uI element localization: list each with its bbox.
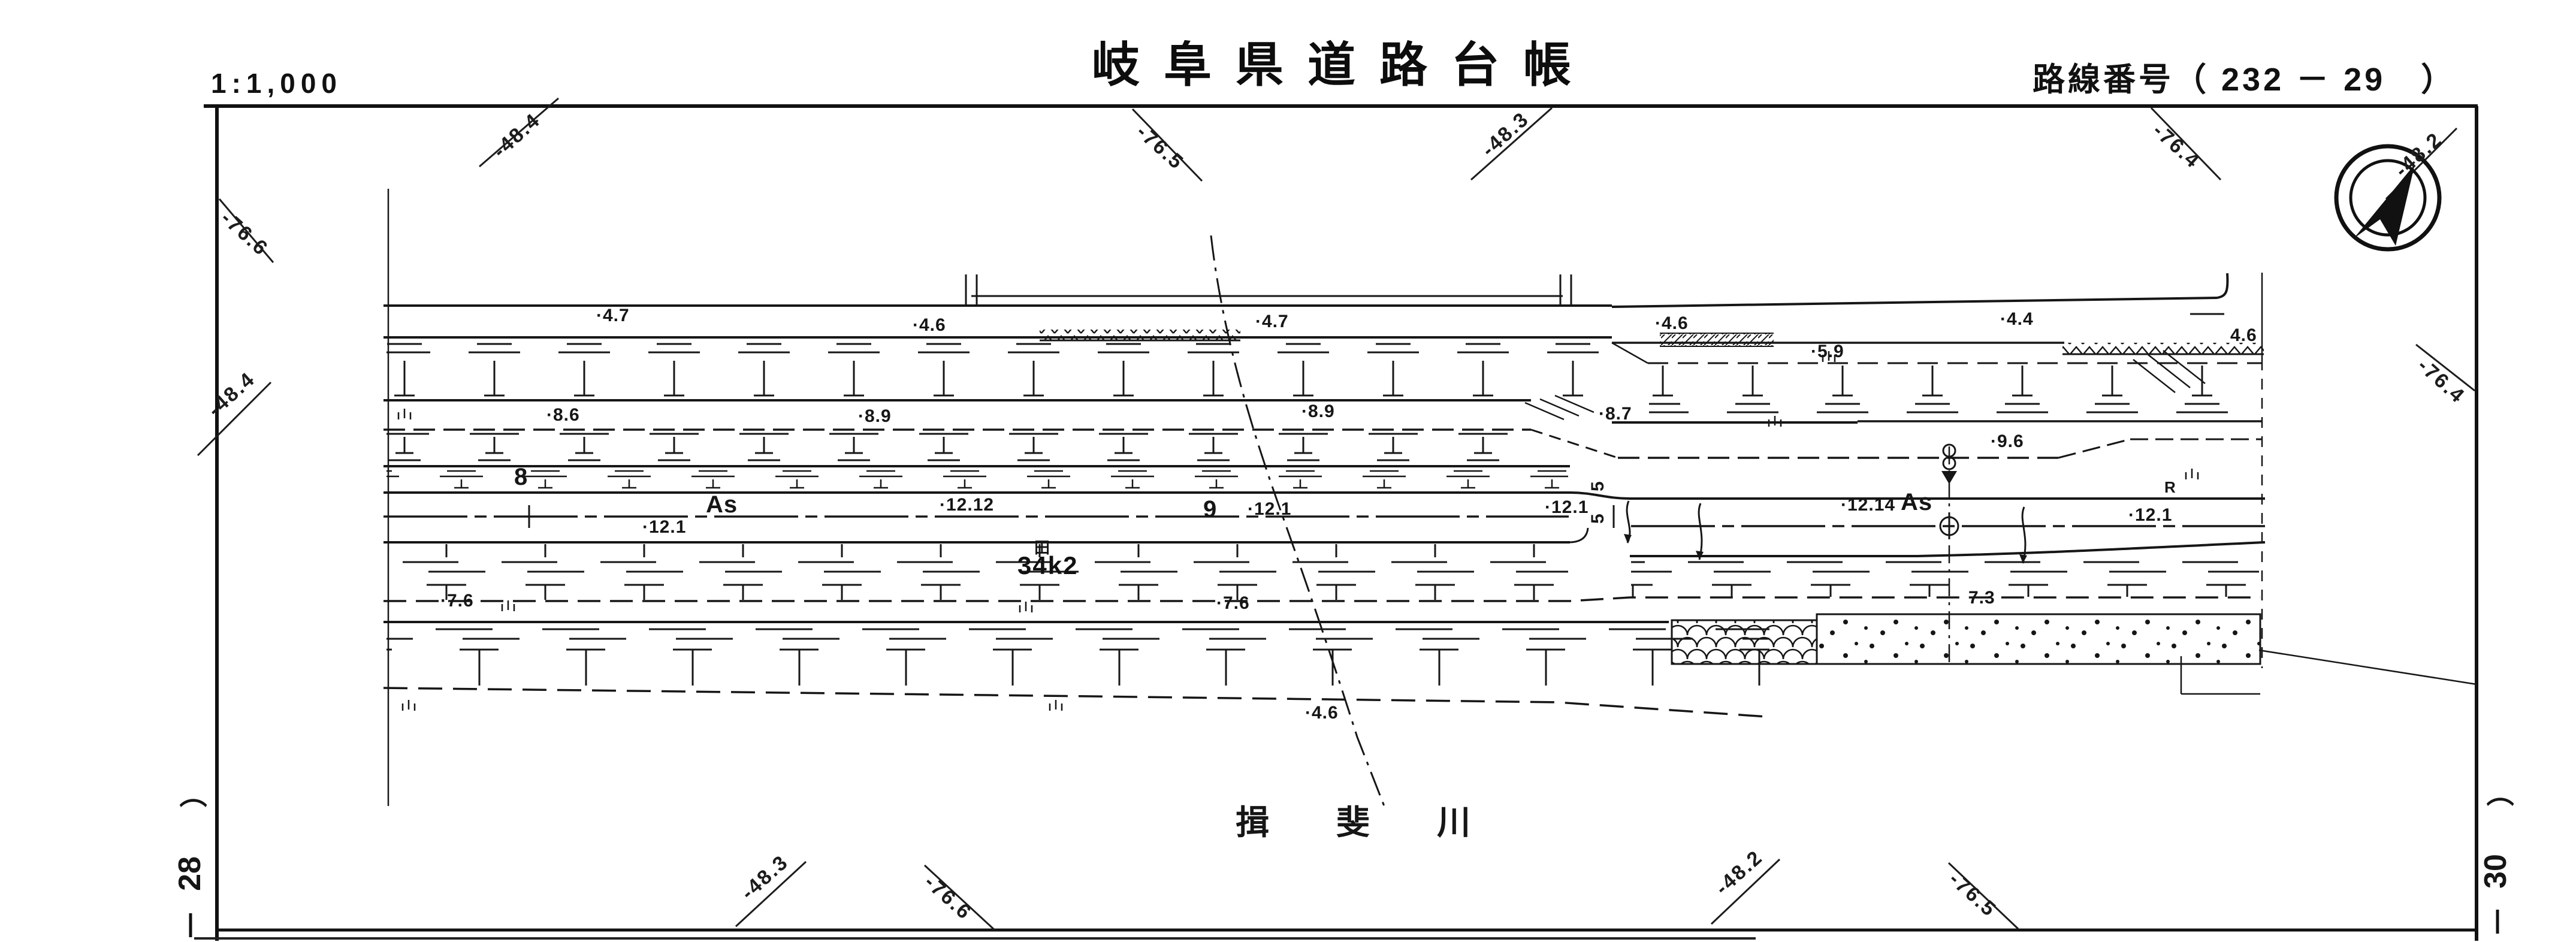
elevation-label: ·4.4 bbox=[2000, 310, 2034, 328]
elevation-label: ·4.7 bbox=[1255, 313, 1289, 331]
elevation-label: 5 bbox=[1589, 513, 1607, 524]
elevation-label: ·4.6 bbox=[1305, 704, 1339, 722]
km-post-label: 34k2 bbox=[1017, 551, 1078, 580]
edge-paren-right: （ bbox=[2486, 779, 2513, 807]
elevation-label: 5 bbox=[1589, 481, 1607, 491]
river-name: 揖斐川 bbox=[1236, 796, 1538, 844]
elevation-label: 4.6 bbox=[2230, 327, 2257, 345]
elevation-label: As bbox=[1901, 490, 1932, 514]
adjacent-sheet-number-right: 30 bbox=[2480, 854, 2511, 889]
elevation-label: ·12.1 bbox=[1545, 499, 1589, 517]
elevation-label: ·8.7 bbox=[1599, 405, 1632, 423]
elevation-label: ·12.1 bbox=[2128, 506, 2172, 524]
elevation-label: 9 bbox=[1203, 497, 1217, 521]
edge-paren-left: （ bbox=[179, 780, 206, 808]
page-title: 岐阜県道路台帳 bbox=[1092, 26, 1595, 96]
elevation-label: ·12.14 bbox=[1841, 496, 1895, 514]
elevation-label: ·8.9 bbox=[858, 407, 892, 425]
elevation-label: ·12.1 bbox=[1248, 500, 1291, 518]
elevation-label: ·7.6 bbox=[440, 592, 474, 610]
boundary-line bbox=[1211, 236, 1384, 806]
elevation-label: As bbox=[706, 493, 738, 517]
route-number: 路線番号（ 232 － 29 ） bbox=[2033, 53, 2456, 100]
map-scale: 1:1,000 bbox=[211, 67, 342, 99]
elevation-label: ·12.12 bbox=[940, 496, 994, 514]
elevation-label: ·4.6 bbox=[913, 316, 946, 334]
elevation-label: 7.3 bbox=[1968, 589, 1995, 607]
adjacent-sheet-number-left: 28 bbox=[174, 856, 206, 891]
elevation-label: ·8.9 bbox=[1301, 403, 1335, 421]
elevation-label: ·5.9 bbox=[1811, 343, 1844, 361]
elevation-label: ·4.7 bbox=[596, 307, 630, 325]
elevation-label: ·7.6 bbox=[1216, 594, 1250, 612]
elevation-label: 8 bbox=[514, 465, 528, 489]
road-ledger-sheet: 1:1,000 岐阜県道路台帳 路線番号（ 232 － 29 ） 揖斐川 28 … bbox=[0, 0, 2576, 942]
elevation-label: ·8.6 bbox=[546, 406, 580, 424]
elevation-label: ·9.6 bbox=[1991, 433, 2024, 451]
elevation-label: R bbox=[2164, 479, 2176, 495]
elevation-label: ·4.6 bbox=[1655, 315, 1689, 333]
elevation-label: ·12.1 bbox=[642, 518, 686, 536]
